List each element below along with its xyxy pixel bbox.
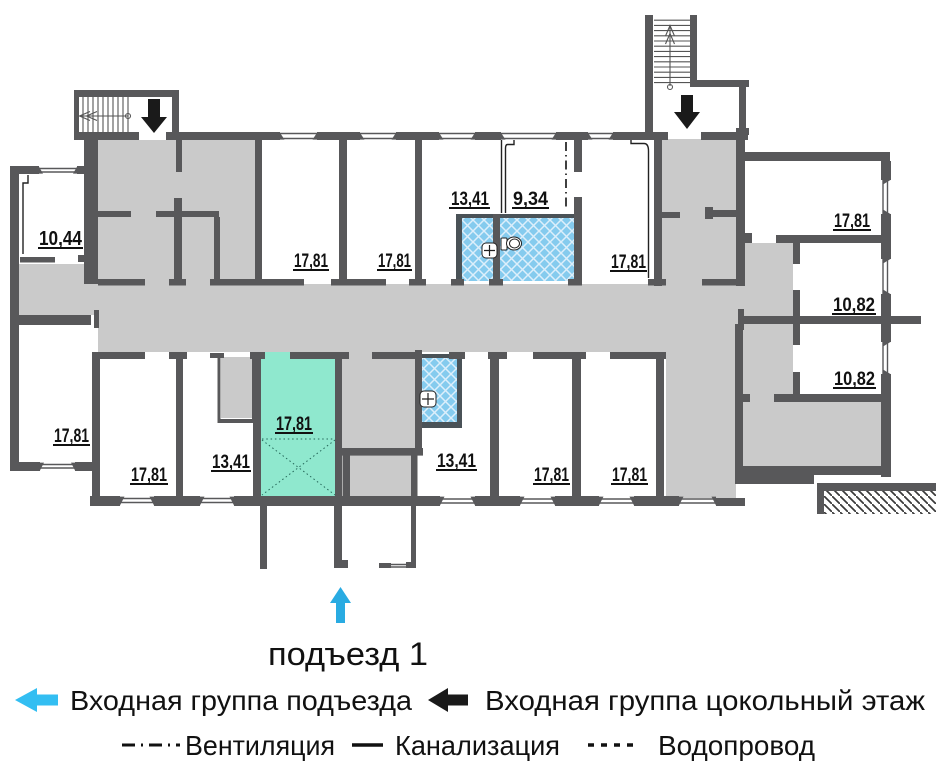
svg-text:17,81: 17,81 <box>834 211 870 232</box>
svg-text:10,44: 10,44 <box>39 228 83 250</box>
svg-text:17,81: 17,81 <box>276 414 312 435</box>
svg-text:17,81: 17,81 <box>611 252 646 273</box>
svg-text:17,81: 17,81 <box>294 251 328 272</box>
svg-text:Канализация: Канализация <box>395 730 560 761</box>
svg-text:17,81: 17,81 <box>131 465 167 486</box>
svg-text:Вентиляция: Вентиляция <box>185 730 335 761</box>
svg-text:13,41: 13,41 <box>437 451 476 472</box>
svg-text:13,41: 13,41 <box>451 189 489 210</box>
svg-text:17,81: 17,81 <box>612 465 647 486</box>
svg-text:17,81: 17,81 <box>534 465 569 486</box>
svg-text:9,34: 9,34 <box>513 189 548 210</box>
svg-text:17,81: 17,81 <box>54 426 89 447</box>
svg-text:Входная группа цокольный этаж: Входная группа цокольный этаж <box>485 685 925 716</box>
svg-text:13,41: 13,41 <box>212 452 250 473</box>
svg-text:17,81: 17,81 <box>378 251 411 272</box>
svg-text:10,82: 10,82 <box>834 369 875 390</box>
svg-text:Входная группа подъезда: Входная группа подъезда <box>70 685 412 716</box>
svg-text:Водопровод: Водопровод <box>658 730 815 761</box>
svg-text:10,82: 10,82 <box>833 295 875 316</box>
svg-text:подъезд 1: подъезд 1 <box>268 636 428 672</box>
